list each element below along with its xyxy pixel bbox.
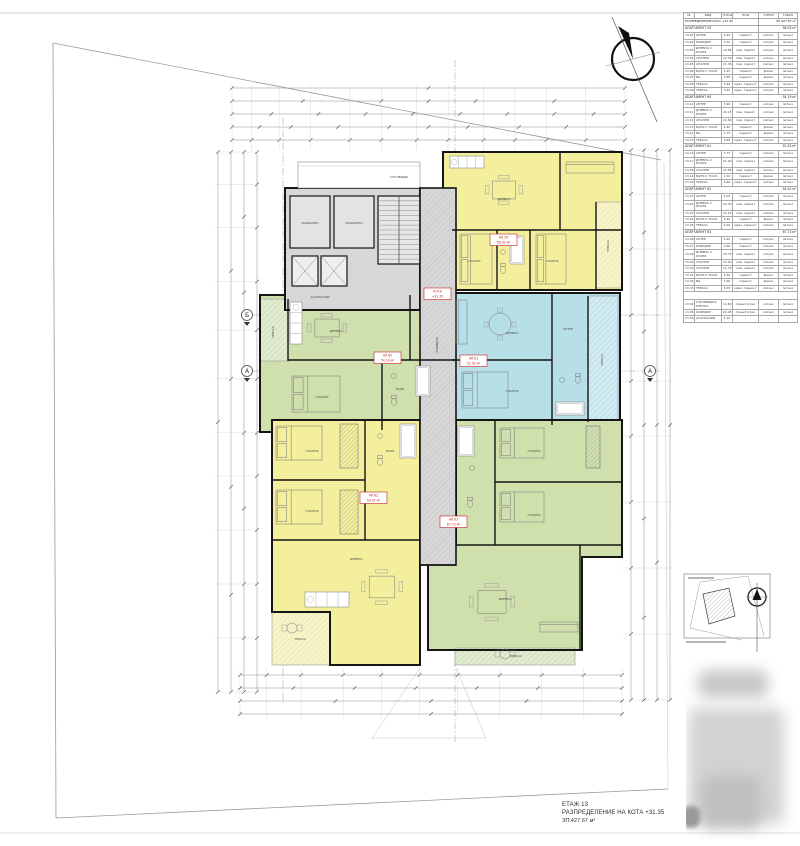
room-number: 13.36 [684, 316, 695, 322]
room-label: ТЕРАСА [600, 353, 604, 367]
apartment-name: АПАРТАМЕНТ 59 [684, 25, 759, 32]
room-area: 21.40 [722, 157, 733, 167]
room-floor-finish: лам. паркет [733, 200, 759, 210]
room-area: 23.75 [722, 250, 733, 260]
title-block: ЕТАЖ 13 РАЗПРЕДЕЛЕНИЕ НА КОТА +31.35 ЗП:… [562, 802, 664, 825]
inset-text-bar [686, 641, 726, 643]
room-schedule-table: №ВИДПЛОЩПОДСТЕНИТАВАНРАЗПРЕДЕЛЕНИЕ КОТА … [683, 12, 797, 323]
red-label-line1: АП.62 [369, 493, 378, 497]
room-number: 13.22 [684, 200, 695, 210]
schedule-row: 13.11ДНЕВНА С КУХНЯ20.15лам. паркетлатек… [684, 108, 798, 118]
red-area-label: КОТА+31.35 [424, 288, 451, 300]
room-label: АСАНСЬОРИ [310, 295, 329, 299]
room-label: ДНЕВНА [350, 557, 364, 561]
red-label-line1: АП.59 [499, 235, 508, 239]
room-number: 13.11 [684, 108, 695, 118]
schedule-row: 13.17ДНЕВНА С КУХНЯ21.40лам. паркетлатек… [684, 157, 798, 167]
room-ceiling-finish: латекс [779, 157, 798, 167]
room-label: ТЕРАСА [271, 325, 275, 339]
grid-bubble-arrow [244, 322, 250, 326]
room-wall-finish: латекс [759, 46, 779, 56]
stamp-blob [702, 776, 760, 828]
schedule-table: №ВИДПЛОЩПОДСТЕНИТАВАНРАЗПРЕДЕЛЕНИЕ КОТА … [683, 12, 798, 323]
room-label: ДНЕВНА [506, 331, 520, 335]
title-level: РАЗПРЕДЕЛЕНИЕ НА КОТА +31.35 [562, 810, 664, 818]
bathtub [400, 424, 416, 458]
room-area: 20.15 [722, 108, 733, 118]
bathtub [556, 402, 584, 415]
site-line [53, 43, 661, 160]
room-floor-finish: лам. паркет [733, 108, 759, 118]
room-number: 13.03 [684, 46, 695, 56]
apartment-name: АПАРТАМЕНТ 60 [684, 94, 759, 101]
site-line [53, 43, 56, 818]
room-label: ТЕРАСА [606, 239, 610, 253]
north-arrow [606, 17, 660, 122]
room-wall-finish: латекс [759, 157, 779, 167]
red-label-line2: 54.19 м² [381, 359, 395, 363]
gap [684, 292, 798, 300]
apartment-name: АПАРТАМЕНТ 63 [684, 229, 759, 236]
room-ceiling-finish: латекс [779, 108, 798, 118]
grid-bubble-letter: Б [245, 312, 249, 319]
red-label-line2: 52.53 м² [467, 362, 481, 366]
room-area: 14.60 [722, 300, 733, 310]
schedule-row: АПАРТАМЕНТ 5956.93 м² [684, 25, 798, 32]
title-area: ЗП:427.67 м² [562, 818, 664, 825]
room-area: 22.30 [722, 200, 733, 210]
stair-core [285, 162, 420, 310]
room-name: ДНЕВНА С КУХНЯ [695, 108, 722, 118]
room-label: СПАЛНЯ [528, 449, 541, 453]
red-area-label: АП.6254.52 м² [360, 492, 387, 504]
apartment-name: АПАРТАМЕНТ 61 [684, 143, 759, 150]
room-label: ДНЕВНА [330, 329, 344, 333]
room-name: ДНЕВНА С КУХНЯ [695, 200, 722, 210]
room-number: 13.17 [684, 157, 695, 167]
grid-bubble-arrow [647, 378, 653, 382]
inset-text-bar [688, 577, 714, 579]
apartment-fill [443, 152, 622, 290]
room-label: СПАЛНЯ [506, 389, 519, 393]
room-ceiling-finish: латекс [779, 300, 798, 310]
room-wall-finish: - [759, 316, 779, 322]
grid-bubble-arrow [244, 378, 250, 382]
room-number: 13.34 [684, 300, 695, 310]
room-label: СПАЛНЯ [528, 513, 541, 517]
red-label-line1: АП.61 [469, 356, 478, 360]
room-label: СПАЛНЯ [306, 509, 319, 513]
room-wall-finish: латекс [759, 200, 779, 210]
red-area-label: АП.6152.53 м² [460, 355, 487, 367]
schedule-row: АПАРТАМЕНТ 6054.19 м² [684, 94, 798, 101]
schedule-row: АПАРТАМЕНТ 6367.73 м² [684, 229, 798, 236]
apartment-area: 54.19 м² [759, 94, 798, 101]
stamp-blob [698, 670, 768, 698]
room-label: ДНЕВНА [498, 197, 512, 201]
room-floor-finish: лам. паркет [733, 250, 759, 260]
apartment-ap59 [443, 152, 622, 290]
room-wall-finish: латекс [759, 300, 779, 310]
room-label: КОРИДОР [435, 337, 439, 352]
schedule-row: АПАРТАМЕНТ 6152.53 м² [684, 143, 798, 150]
projection-line [456, 668, 486, 738]
schedule-row: 13.34СТЪЛБИЩНА КЛЕТКА14.60гранитогреслат… [684, 300, 798, 310]
room-ceiling-finish: латекс [779, 250, 798, 260]
wardrobe [586, 426, 600, 468]
apartment-name: АПАРТАМЕНТ 62 [684, 186, 759, 193]
room-ceiling-finish: латекс [779, 46, 798, 56]
title-floor: ЕТАЖ 13 [562, 802, 664, 810]
room-floor-finish: - [733, 316, 759, 322]
apartment-area: 67.73 м² [759, 229, 798, 236]
red-area-label: АП.5956.93 м² [490, 234, 517, 246]
bathtub [458, 426, 474, 456]
red-label-line2: 56.93 м² [497, 241, 511, 245]
room-number: 13.28 [684, 250, 695, 260]
schedule-row: 13.22ДНЕВНА С КУХНЯ22.30лам. паркетлатек… [684, 200, 798, 210]
red-label-line2: +31.35 [432, 295, 443, 299]
room-label: ДНЕВНА [499, 597, 513, 601]
red-label-line2: 67.73 м² [447, 523, 461, 527]
stamp-blob [686, 806, 700, 828]
apartment-area: 52.53 м² [759, 143, 798, 150]
room-name: АСАНСЬОРИ [695, 316, 722, 322]
stamp-blur-area [686, 656, 796, 840]
wardrobe [340, 490, 358, 534]
schedule-row: 13.36АСАНСЬОРИ5.10--- [684, 316, 798, 322]
room-name: ДНЕВНА С КУХНЯ [695, 157, 722, 167]
red-area-label: АП.6054.19 м² [374, 352, 401, 364]
projection-line [372, 668, 420, 738]
room-label: СПАЛНЯ [306, 449, 319, 453]
room-label: МАШИННО [302, 221, 320, 225]
schedule-row: АПАРТАМЕНТ 6254.52 м² [684, 186, 798, 193]
room-name: ДНЕВНА С КУХНЯ [695, 250, 722, 260]
room-label: БАНЯ [396, 387, 404, 391]
apartment-area: 56.93 м² [759, 25, 798, 32]
room-area: 5.10 [722, 316, 733, 322]
room-area: 19.85 [722, 46, 733, 56]
room-name: ДНЕВНА С КУХНЯ [695, 46, 722, 56]
room-name: СТЪЛБИЩНА КЛЕТКА [695, 300, 722, 310]
room-label: ТЕРАСА [509, 654, 523, 658]
room-floor-finish: лам. паркет [733, 157, 759, 167]
room-label: МАШИННО [346, 221, 364, 225]
red-label-line2: 54.52 м² [367, 499, 381, 503]
floor-plan-svg: ДНЕВНАСПАЛНЯСПАЛНЯТЕРАСАДНЕВНАСПАЛНЯАНТР… [0, 0, 800, 846]
room-label: ТЕРАСА [293, 637, 307, 641]
drawing-sheet: ДНЕВНАСПАЛНЯСПАЛНЯТЕРАСАДНЕВНАСПАЛНЯАНТР… [0, 0, 800, 846]
room-label: БАНЯ [386, 449, 394, 453]
room-label: АНТРЕ [563, 327, 573, 331]
room-label: СПАЛНЯ [546, 259, 559, 263]
room-ceiling-finish: латекс [779, 200, 798, 210]
bathtub [416, 366, 430, 396]
wardrobe [340, 424, 358, 468]
room-floor-finish: гранитогрес [733, 300, 759, 310]
red-label-line1: КОТА [433, 289, 443, 293]
room-wall-finish: латекс [759, 108, 779, 118]
red-area-label: АП.6367.73 м² [440, 516, 467, 528]
room-ceiling-finish: - [779, 316, 798, 322]
apartment-area: 54.52 м² [759, 186, 798, 193]
room-wall-finish: латекс [759, 250, 779, 260]
schedule-row [684, 292, 798, 300]
room-label: СПАЛНЯ [316, 395, 329, 399]
schedule-row: 13.28ДНЕВНА С КУХНЯ23.75лам. паркетлатек… [684, 250, 798, 260]
red-label-line1: АП.63 [449, 517, 458, 521]
room-floor-finish: лам. паркет [733, 46, 759, 56]
site-inset [684, 574, 770, 652]
schedule-row: 13.03ДНЕВНА С КУХНЯ19.85лам. паркетлатек… [684, 46, 798, 56]
red-label-line1: АП.60 [383, 353, 392, 357]
room-label: СТЪЛБИЩЕ [390, 175, 408, 179]
room-label: СПАЛНЯ [468, 259, 481, 263]
site-line [664, 163, 668, 789]
